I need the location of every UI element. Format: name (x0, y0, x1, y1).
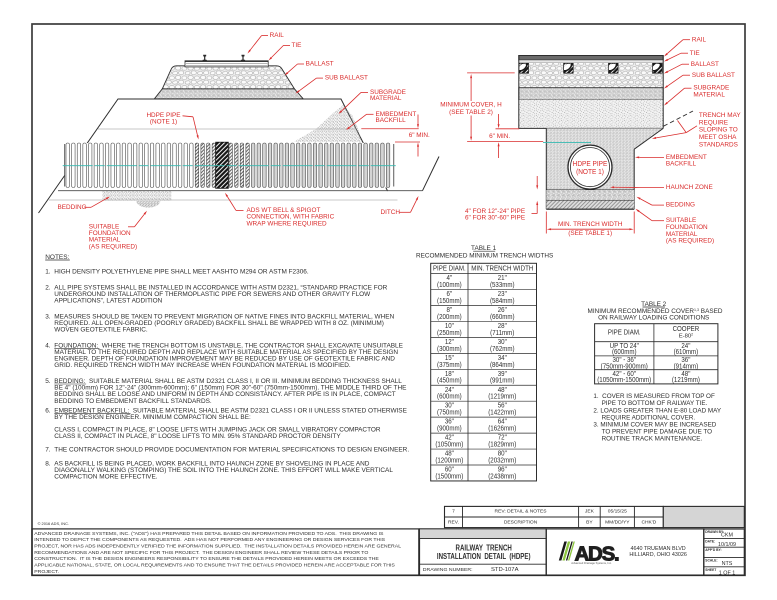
svg-text:RAIL: RAIL (692, 36, 707, 43)
svg-text:INTENDED TO DEPICT THE COMPONE: INTENDED TO DEPICT THE COMPONENTS AS REQ… (34, 537, 386, 543)
svg-text:05/15/25: 05/15/25 (608, 509, 627, 515)
svg-text:(750mm-900mm): (750mm-900mm) (601, 363, 648, 370)
svg-text:ADVANCED DRAINAGE SYSTEMS, INC: ADVANCED DRAINAGE SYSTEMS, INC. ("ADS") … (34, 531, 384, 537)
svg-text:MINIMUM COVER, H: MINIMUM COVER, H (440, 101, 502, 108)
svg-text:SLOPING TO: SLOPING TO (699, 127, 738, 134)
svg-text:(1219mm): (1219mm) (488, 393, 516, 400)
svg-text:(900mm): (900mm) (437, 425, 462, 432)
svg-text:WRAP WHERE REQUIRED: WRAP WHERE REQUIRED (247, 220, 328, 227)
svg-text:HILLIARD, OHIO 43026: HILLIARD, OHIO 43026 (629, 552, 687, 558)
svg-text:RECOMMENDED MINIMUM TRENCH WID: RECOMMENDED MINIMUM TRENCH WIDTHS (416, 252, 553, 259)
svg-text:STD-107A: STD-107A (491, 567, 519, 573)
svg-text:BY: BY (586, 519, 593, 525)
svg-text:(2438mm): (2438mm) (488, 473, 516, 480)
svg-text:ROUTINE TRACK MAINTENANCE.: ROUTINE TRACK MAINTENANCE. (602, 436, 703, 443)
svg-text:(914mm): (914mm) (674, 363, 699, 370)
svg-text:REV.: REV. (448, 519, 459, 525)
svg-text:CHK'D: CHK'D (641, 519, 656, 525)
svg-text:(1422mm): (1422mm) (488, 409, 516, 416)
svg-text:TIE: TIE (292, 42, 302, 49)
svg-text:BALLAST: BALLAST (306, 61, 334, 68)
svg-text:(1626mm): (1626mm) (488, 425, 516, 432)
svg-text:BACKFILL: BACKFILL (376, 117, 407, 124)
svg-text:(533mm): (533mm) (490, 282, 515, 289)
svg-text:TRENCH MAY: TRENCH MAY (699, 112, 742, 119)
svg-text:THE CONTRACTOR SHOULD PROVIDE: THE CONTRACTOR SHOULD PROVIDE DOCUMENTAT… (54, 447, 409, 454)
svg-text:DESCRIPTION: DESCRIPTION (504, 519, 538, 525)
svg-text:5.: 5. (45, 378, 51, 385)
svg-text:COMPACTION MORE EFFECTIVE.: COMPACTION MORE EFFECTIVE. (54, 474, 157, 481)
svg-text:(660mm): (660mm) (490, 314, 515, 321)
svg-text:(864mm): (864mm) (490, 361, 515, 368)
svg-text:DRAWING NUMBER:: DRAWING NUMBER: (423, 567, 473, 573)
svg-text:(600mm): (600mm) (612, 349, 637, 356)
svg-text:4.: 4. (45, 342, 51, 349)
svg-text:BALLAST: BALLAST (691, 61, 719, 68)
svg-text:DITCH: DITCH (381, 209, 401, 216)
svg-text:3. MINIMUM COVER MAY BE INCREA: 3. MINIMUM COVER MAY BE INCREASED (593, 422, 716, 429)
svg-text:(1200mm): (1200mm) (435, 457, 463, 464)
svg-text:6.: 6. (45, 407, 51, 414)
svg-text:(750mm): (750mm) (437, 409, 462, 416)
svg-text:(600mm): (600mm) (437, 393, 462, 400)
svg-text:(150mm): (150mm) (437, 298, 462, 305)
svg-text:(200mm): (200mm) (437, 314, 462, 321)
svg-text:RECOMMENDATIONS AND ARE NOT SP: RECOMMENDATIONS AND ARE NOT SPECIFIC FOR… (34, 550, 368, 556)
svg-text:NTS: NTS (722, 561, 733, 567)
svg-text:SCALE:: SCALE: (705, 559, 717, 563)
svg-text:SUB BALLAST: SUB BALLAST (692, 72, 735, 79)
svg-text:BY THE DESIGN ENGINEER. MINIMU: BY THE DESIGN ENGINEER. MINIMUM COMPACTI… (54, 414, 251, 421)
svg-text:MM/DD/YY: MM/DD/YY (605, 519, 630, 525)
svg-text:MATERIAL: MATERIAL (370, 95, 402, 102)
svg-text:PIPE DIAM.: PIPE DIAM. (433, 265, 466, 272)
svg-text:(AS REQUIRED): (AS REQUIRED) (666, 238, 714, 245)
svg-text:6" MIN.: 6" MIN. (409, 132, 430, 139)
svg-text:COOPER: COOPER (673, 326, 700, 333)
svg-text:CLASS II, COMPACT IN PLACE, 8": CLASS II, COMPACT IN PLACE, 8" LOOSE LIF… (54, 433, 341, 440)
svg-text:(1050mm): (1050mm) (435, 441, 463, 448)
svg-text:BEDDING TO EMBEDMENT BACKFILL: BEDDING TO EMBEDMENT BACKFILL STANDARDS. (54, 398, 212, 405)
svg-text:HDPE PIPE: HDPE PIPE (573, 161, 608, 168)
svg-text:© 2016 ADS, INC.: © 2016 ADS, INC. (38, 521, 69, 526)
svg-text:WOVEN GEOTEXTILE FABRIC.: WOVEN GEOTEXTILE FABRIC. (54, 327, 148, 334)
svg-text:HIGH DENSITY POLYETHYLENE PIPE: HIGH DENSITY POLYETHYLENE PIPE SHALL MEE… (54, 269, 309, 276)
svg-text:(SEE TABLE 1): (SEE TABLE 1) (568, 230, 612, 237)
svg-text:8.: 8. (45, 460, 51, 467)
svg-text:1 OF 1: 1 OF 1 (719, 570, 735, 576)
svg-text:CKM: CKM (721, 533, 733, 539)
svg-text:REV: DETAIL & NOTES: REV: DETAIL & NOTES (495, 509, 548, 515)
svg-text:(1219mm): (1219mm) (672, 377, 700, 384)
svg-text:(1829mm): (1829mm) (488, 441, 516, 448)
svg-text:PIPE DIAM.: PIPE DIAM. (608, 329, 641, 336)
svg-text:(100mm): (100mm) (437, 282, 462, 289)
svg-text:1.: 1. (45, 269, 51, 276)
svg-text:(375mm): (375mm) (437, 361, 462, 368)
svg-text:SHEET: SHEET (705, 568, 716, 572)
svg-text:BEDDING: BEDDING (58, 204, 87, 211)
svg-text:(1500mm): (1500mm) (435, 473, 463, 480)
svg-text:TO PREVENT PIPE DAMAGE DUE TO: TO PREVENT PIPE DAMAGE DUE TO (602, 429, 713, 436)
svg-text:SUB BALLAST: SUB BALLAST (325, 75, 368, 82)
svg-text:(AS REQUIRED): (AS REQUIRED) (89, 243, 137, 250)
svg-text:MEET OSHA: MEET OSHA (699, 134, 737, 141)
svg-text:2. LOADS GREATER THAN E-80 LOA: 2. LOADS GREATER THAN E-80 LOAD MAY (593, 407, 722, 414)
svg-text:MIN. TRENCH WIDTH: MIN. TRENCH WIDTH (558, 221, 623, 228)
svg-text:(762mm): (762mm) (490, 345, 515, 352)
svg-text:REQUIRE: REQUIRE (699, 119, 728, 126)
svg-text:PROJECT.: PROJECT. (34, 569, 59, 575)
svg-text:MATERIAL: MATERIAL (693, 91, 725, 98)
svg-text:BACKFILL: BACKFILL (666, 161, 697, 168)
svg-text:STANDARDS: STANDARDS (699, 141, 738, 148)
svg-text:3.: 3. (45, 313, 51, 320)
svg-text:MIN. TRENCH WIDTH: MIN. TRENCH WIDTH (471, 265, 533, 272)
svg-text:7: 7 (452, 509, 455, 515)
svg-text:PROJECT, NOR HAS ADS INDEPENDE: PROJECT, NOR HAS ADS INDEPENDENTLY VERIF… (34, 544, 401, 550)
svg-text:(584mm): (584mm) (490, 298, 515, 305)
svg-text:(711mm): (711mm) (490, 330, 514, 337)
svg-text:ON RAILWAY LOADING CONDITIONS: ON RAILWAY LOADING CONDITIONS (598, 314, 709, 321)
svg-text:PIPE TO BOTTOM OF RAILWAY TIE.: PIPE TO BOTTOM OF RAILWAY TIE. (602, 400, 708, 407)
svg-text:RAIL: RAIL (270, 32, 285, 39)
svg-text:1. COVER IS MEASURED FROM TOP: 1. COVER IS MEASURED FROM TOP OF (593, 393, 715, 400)
svg-text:APPLICATIONS”, LATEST ADDITION: APPLICATIONS”, LATEST ADDITION (54, 298, 162, 305)
svg-text:(SEE TABLE 2): (SEE TABLE 2) (449, 109, 493, 116)
svg-text:(450mm): (450mm) (437, 377, 462, 384)
svg-text:(1050mm-1500mm): (1050mm-1500mm) (597, 377, 651, 384)
svg-text:(NOTE 1): (NOTE 1) (150, 119, 177, 126)
svg-text:7.: 7. (45, 447, 51, 454)
svg-text:6" FOR 30"-60" PIPE: 6" FOR 30"-60" PIPE (465, 215, 525, 222)
svg-text:GRID. REQUIRED TRENCH WIDTH MA: GRID. REQUIRED TRENCH WIDTH MAY INCREASE… (54, 362, 351, 369)
svg-text:BEDDING: BEDDING (666, 202, 695, 209)
svg-text:DATE:: DATE: (705, 539, 715, 543)
svg-text:(300mm): (300mm) (437, 345, 462, 352)
svg-text:Advanced Drainage Systems, Inc: Advanced Drainage Systems, Inc. (571, 561, 612, 565)
svg-text:APPLICABLE NATIONAL, STATE, OR: APPLICABLE NATIONAL, STATE, OR LOCAL REQ… (34, 563, 395, 569)
svg-text:APP'D BY:: APP'D BY: (705, 548, 721, 552)
svg-text:(250mm): (250mm) (437, 330, 462, 337)
svg-text:6" MIN.: 6" MIN. (489, 133, 510, 140)
svg-text:(2032mm): (2032mm) (488, 457, 516, 464)
svg-text:HAUNCH ZONE: HAUNCH ZONE (666, 184, 713, 191)
svg-text:10/1/09: 10/1/09 (718, 542, 736, 548)
svg-text:TIE: TIE (690, 50, 700, 57)
svg-text:JEK: JEK (585, 509, 595, 515)
svg-text:CONSTRUCTION. IT IS THE DESIG: CONSTRUCTION. IT IS THE DESIGN ENGINEERS… (34, 556, 379, 562)
svg-text:(610mm): (610mm) (674, 349, 699, 356)
svg-text:2.: 2. (45, 284, 51, 291)
svg-text:(NOTE 1): (NOTE 1) (576, 169, 604, 176)
svg-text:(991mm): (991mm) (490, 377, 515, 384)
svg-text:REQUIRE ADDITIONAL COVER.: REQUIRE ADDITIONAL COVER. (602, 414, 696, 421)
svg-text:E-802: E-802 (679, 333, 693, 340)
svg-text:INSTALLATION DETAIL (HDPE): INSTALLATION DETAIL (HDPE) (437, 551, 531, 561)
